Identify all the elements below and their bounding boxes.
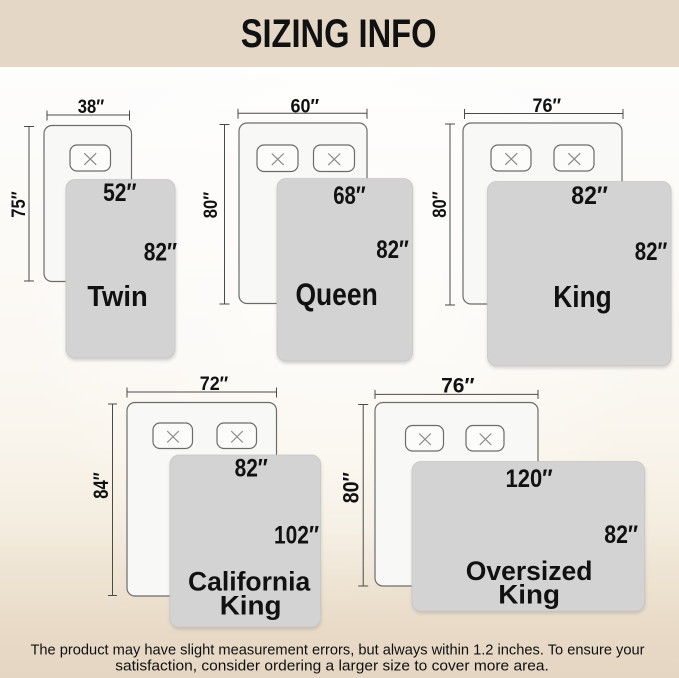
svg-text:76″: 76″ xyxy=(533,94,562,116)
svg-text:75″: 75″ xyxy=(8,191,29,218)
svg-text:82″: 82″ xyxy=(235,454,268,482)
svg-text:Queen: Queen xyxy=(295,278,377,313)
svg-text:80″: 80″ xyxy=(200,191,221,218)
svg-text:King: King xyxy=(553,280,611,314)
svg-text:King: King xyxy=(220,590,282,620)
svg-text:120″: 120″ xyxy=(505,465,552,493)
svg-text:84″: 84″ xyxy=(90,472,113,498)
svg-text:72″: 72″ xyxy=(200,372,229,394)
svg-text:80″: 80″ xyxy=(339,472,363,503)
svg-text:76″: 76″ xyxy=(441,374,474,397)
svg-text:82″: 82″ xyxy=(604,521,638,549)
svg-text:Twin: Twin xyxy=(87,279,147,312)
svg-text:King: King xyxy=(498,579,560,609)
svg-text:82″: 82″ xyxy=(376,235,409,263)
svg-text:102″: 102″ xyxy=(274,521,319,549)
svg-text:SIZING INFO: SIZING INFO xyxy=(241,11,437,56)
svg-text:82″: 82″ xyxy=(571,182,608,210)
svg-text:80″: 80″ xyxy=(429,191,450,218)
svg-text:satisfaction, consider orderin: satisfaction, consider ordering a larger… xyxy=(115,658,549,675)
svg-text:52″: 52″ xyxy=(103,178,136,206)
svg-text:The product may have slight me: The product may have slight measurement … xyxy=(30,642,644,658)
svg-text:68″: 68″ xyxy=(333,181,365,210)
svg-text:82″: 82″ xyxy=(635,237,668,265)
svg-text:38″: 38″ xyxy=(78,96,105,117)
svg-text:82″: 82″ xyxy=(144,238,177,266)
svg-text:60″: 60″ xyxy=(291,95,320,117)
